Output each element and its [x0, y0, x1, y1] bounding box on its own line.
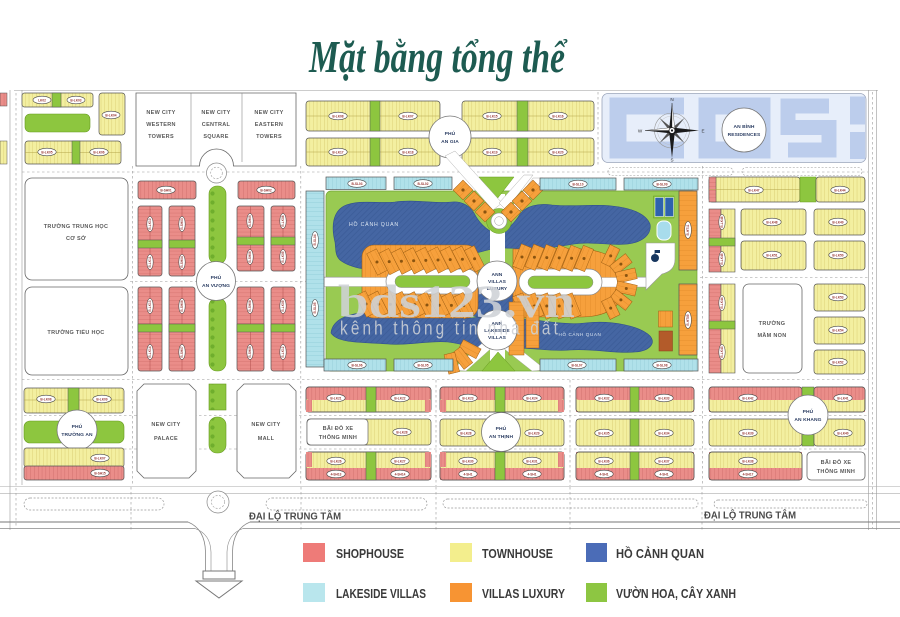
svg-text:B-LK09: B-LK09: [96, 397, 107, 401]
svg-text:THÔNG MINH: THÔNG MINH: [319, 433, 357, 441]
svg-text:PHÚ: PHÚ: [445, 130, 456, 137]
svg-text:4-SH1: 4-SH1: [659, 472, 668, 476]
svg-text:B-LK19: B-LK19: [486, 150, 497, 154]
svg-text:B-SL06: B-SL06: [352, 363, 363, 367]
svg-text:B-LK12: B-LK12: [281, 346, 285, 357]
svg-text:B-LK20: B-LK20: [552, 150, 563, 154]
svg-text:B-LK54: B-LK54: [832, 328, 843, 332]
svg-text:TOWERS: TOWERS: [256, 134, 282, 140]
svg-text:AN GIA: AN GIA: [441, 139, 459, 145]
svg-text:B-LK41: B-LK41: [837, 396, 848, 400]
svg-text:4-SH13: 4-SH13: [331, 472, 342, 476]
svg-text:B-LK21: B-LK21: [330, 396, 341, 400]
svg-text:B-LK43: B-LK43: [720, 346, 724, 357]
svg-text:VILLAS LUXURY: VILLAS LUXURY: [482, 587, 566, 601]
svg-text:B-LK30: B-LK30: [462, 459, 473, 463]
svg-text:B-SH04: B-SH04: [180, 256, 184, 268]
svg-text:SQUARE: SQUARE: [203, 134, 228, 140]
svg-text:LAKESIDE VILLAS: LAKESIDE VILLAS: [336, 587, 426, 601]
svg-text:W: W: [638, 129, 643, 134]
svg-text:B-SH08: B-SH08: [248, 300, 252, 312]
svg-text:B-SL03: B-SL03: [352, 182, 363, 186]
svg-text:4-SH14: 4-SH14: [395, 472, 406, 476]
svg-text:WESTERN: WESTERN: [146, 122, 176, 128]
svg-text:B-LK26: B-LK26: [330, 459, 341, 463]
svg-text:BÃI ĐỖ XE: BÃI ĐỖ XE: [323, 425, 354, 432]
svg-text:RESIDENCES: RESIDENCES: [728, 132, 761, 138]
svg-text:ĐẠI LỘ TRUNG TÂM: ĐẠI LỘ TRUNG TÂM: [249, 510, 341, 523]
svg-text:PHÚ: PHÚ: [72, 423, 83, 430]
svg-text:B-LK27: B-LK27: [394, 459, 405, 463]
svg-text:MẦM NON: MẦM NON: [758, 332, 787, 339]
svg-text:B-LK09: B-LK09: [281, 251, 285, 262]
svg-text:B-LK42: B-LK42: [742, 396, 753, 400]
svg-text:B-LK11: B-LK11: [148, 256, 152, 267]
svg-text:AN KHANG: AN KHANG: [794, 417, 821, 423]
svg-text:HỒ CẢNH QUAN: HỒ CẢNH QUAN: [349, 221, 399, 228]
svg-text:NEW CITY: NEW CITY: [254, 110, 283, 116]
svg-text:B-LK51: B-LK51: [766, 253, 777, 257]
svg-text:B-SL08: B-SL08: [657, 363, 668, 367]
svg-text:NEW CITY: NEW CITY: [201, 110, 230, 116]
svg-text:B-LK29: B-LK29: [528, 431, 539, 435]
svg-text:TRƯỜNG: TRƯỜNG: [759, 319, 786, 327]
svg-text:B-LK37: B-LK37: [658, 459, 669, 463]
svg-text:B-SL07: B-SL07: [572, 363, 583, 367]
svg-text:E: E: [701, 129, 704, 134]
svg-text:LK02: LK02: [38, 98, 46, 102]
svg-text:B-LK40: B-LK40: [837, 431, 848, 435]
svg-text:AN THỊNH: AN THỊNH: [489, 434, 514, 440]
svg-text:B-LK08: B-LK08: [281, 215, 285, 226]
svg-text:CENTRAL: CENTRAL: [202, 122, 231, 128]
svg-text:B-SL05: B-SL05: [313, 302, 317, 313]
svg-text:B-LK33: B-LK33: [658, 396, 669, 400]
svg-text:BÃI ĐỖ XE: BÃI ĐỖ XE: [821, 459, 852, 466]
svg-text:B-LK34: B-LK34: [658, 431, 669, 435]
svg-text:B-LK46: B-LK46: [720, 216, 724, 227]
svg-text:B-LK03: B-LK03: [70, 98, 81, 102]
svg-text:N: N: [670, 97, 673, 102]
svg-text:B-SL05: B-SL05: [418, 363, 429, 367]
svg-text:B-SH03: B-SH03: [180, 218, 184, 230]
svg-text:B-SH15: B-SH15: [94, 471, 106, 475]
svg-text:S: S: [670, 158, 673, 163]
svg-text:PHÚ: PHÚ: [211, 274, 222, 281]
svg-text:B-SL04: B-SL04: [313, 234, 317, 245]
svg-text:B-SH01: B-SH01: [160, 188, 172, 192]
svg-text:ĐẠI LỘ TRUNG TÂM: ĐẠI LỘ TRUNG TÂM: [704, 509, 796, 522]
svg-text:B-LK04: B-LK04: [105, 113, 116, 117]
svg-text:B-LK28: B-LK28: [396, 430, 407, 434]
svg-text:B-LK22: B-LK22: [394, 396, 405, 400]
svg-text:HỒ CẢNH QUAN: HỒ CẢNH QUAN: [616, 546, 704, 561]
svg-text:EASTERN: EASTERN: [255, 122, 283, 128]
svg-text:CƠ SỞ: CƠ SỞ: [66, 235, 86, 242]
svg-text:B-LK13: B-LK13: [148, 300, 152, 311]
svg-text:B-LK53: B-LK53: [832, 295, 843, 299]
svg-text:B-LK09: B-LK09: [281, 300, 285, 311]
svg-text:B-LK52: B-LK52: [832, 360, 843, 364]
svg-text:B-LK07: B-LK07: [94, 456, 105, 460]
svg-text:B-LK14: B-LK14: [148, 346, 152, 357]
svg-text:B-LK44: B-LK44: [834, 188, 845, 192]
svg-text:B-LK49: B-LK49: [832, 220, 843, 224]
svg-text:NEW CITY: NEW CITY: [146, 110, 175, 116]
svg-text:B-LK36: B-LK36: [598, 459, 609, 463]
svg-text:B-SH09: B-SH09: [248, 346, 252, 358]
svg-text:HỒ CẢNH QUAN: HỒ CẢNH QUAN: [559, 331, 602, 337]
svg-text:B-LK18: B-LK18: [402, 150, 413, 154]
svg-text:4-SH1: 4-SH1: [599, 472, 608, 476]
svg-text:B-LK48: B-LK48: [766, 220, 777, 224]
svg-text:B-LK23: B-LK23: [462, 396, 473, 400]
svg-text:B-SH05: B-SH05: [248, 215, 252, 227]
svg-text:B-SH02: B-SH02: [260, 188, 272, 192]
svg-text:TRƯỜNG TRUNG HỌC: TRƯỜNG TRUNG HỌC: [44, 222, 108, 230]
svg-text:B-LK16: B-LK16: [552, 114, 563, 118]
svg-text:B-LK47: B-LK47: [748, 188, 759, 192]
svg-text:B-HT11: B-HT11: [686, 224, 690, 235]
svg-text:B-SH06: B-SH06: [180, 300, 184, 312]
svg-text:B-SL02: B-SL02: [418, 182, 429, 186]
svg-text:B-SL09: B-SL09: [657, 182, 668, 186]
svg-text:B-LK38: B-LK38: [742, 459, 753, 463]
svg-text:4-SH17: 4-SH17: [743, 472, 754, 476]
svg-text:B-SH06: B-SH06: [248, 251, 252, 263]
svg-text:Mặt bằng tổng thể: Mặt bằng tổng thể: [308, 31, 567, 82]
svg-text:B-SH07: B-SH07: [180, 346, 184, 358]
svg-text:PALACE: PALACE: [154, 436, 178, 442]
svg-text:B-LK08: B-LK08: [40, 397, 51, 401]
svg-text:4-SH1: 4-SH1: [463, 472, 472, 476]
svg-text:B-LK31: B-LK31: [526, 459, 537, 463]
svg-text:B-SL10: B-SL10: [573, 182, 584, 186]
svg-text:B-LK17: B-LK17: [332, 150, 343, 154]
svg-text:B-LK50: B-LK50: [832, 253, 843, 257]
svg-text:B-LK08: B-LK08: [332, 114, 343, 118]
svg-text:MALL: MALL: [258, 436, 275, 442]
svg-text:TOWNHOUSE: TOWNHOUSE: [482, 547, 553, 561]
svg-text:B-LK39: B-LK39: [742, 431, 753, 435]
svg-text:B-LK10: B-LK10: [148, 218, 152, 229]
svg-text:B-LK28: B-LK28: [460, 431, 471, 435]
svg-text:B-LK06: B-LK06: [93, 150, 104, 154]
svg-text:NEW CITY: NEW CITY: [151, 422, 180, 428]
svg-text:THÔNG MINH: THÔNG MINH: [817, 467, 855, 475]
svg-text:PHÚ: PHÚ: [803, 408, 814, 415]
svg-text:4-SH1: 4-SH1: [527, 472, 536, 476]
svg-text:B-LK44: B-LK44: [720, 297, 724, 308]
svg-text:kênh thông tin nhà đất: kênh thông tin nhà đất: [340, 318, 561, 340]
svg-text:B-LK45: B-LK45: [720, 253, 724, 264]
svg-text:TOWERS: TOWERS: [148, 134, 174, 140]
svg-text:B-HT09: B-HT09: [686, 314, 690, 325]
svg-text:NEW CITY: NEW CITY: [251, 422, 280, 428]
svg-text:SHOPHOUSE: SHOPHOUSE: [336, 547, 404, 561]
svg-text:B-LK32: B-LK32: [598, 396, 609, 400]
svg-text:VƯỜN HOA, CÂY XANH: VƯỜN HOA, CÂY XANH: [616, 586, 736, 601]
svg-text:PHÚ: PHÚ: [496, 425, 507, 432]
svg-text:B-LK05: B-LK05: [41, 150, 52, 154]
svg-text:B-LK35: B-LK35: [598, 431, 609, 435]
svg-text:TRƯỜNG TIỂU HỌC: TRƯỜNG TIỂU HỌC: [47, 328, 104, 336]
svg-text:B-LK24: B-LK24: [526, 396, 537, 400]
svg-text:B-LK15: B-LK15: [486, 114, 497, 118]
svg-text:AN VƯỢNG: AN VƯỢNG: [202, 283, 230, 289]
svg-text:B-LK07: B-LK07: [402, 114, 413, 118]
